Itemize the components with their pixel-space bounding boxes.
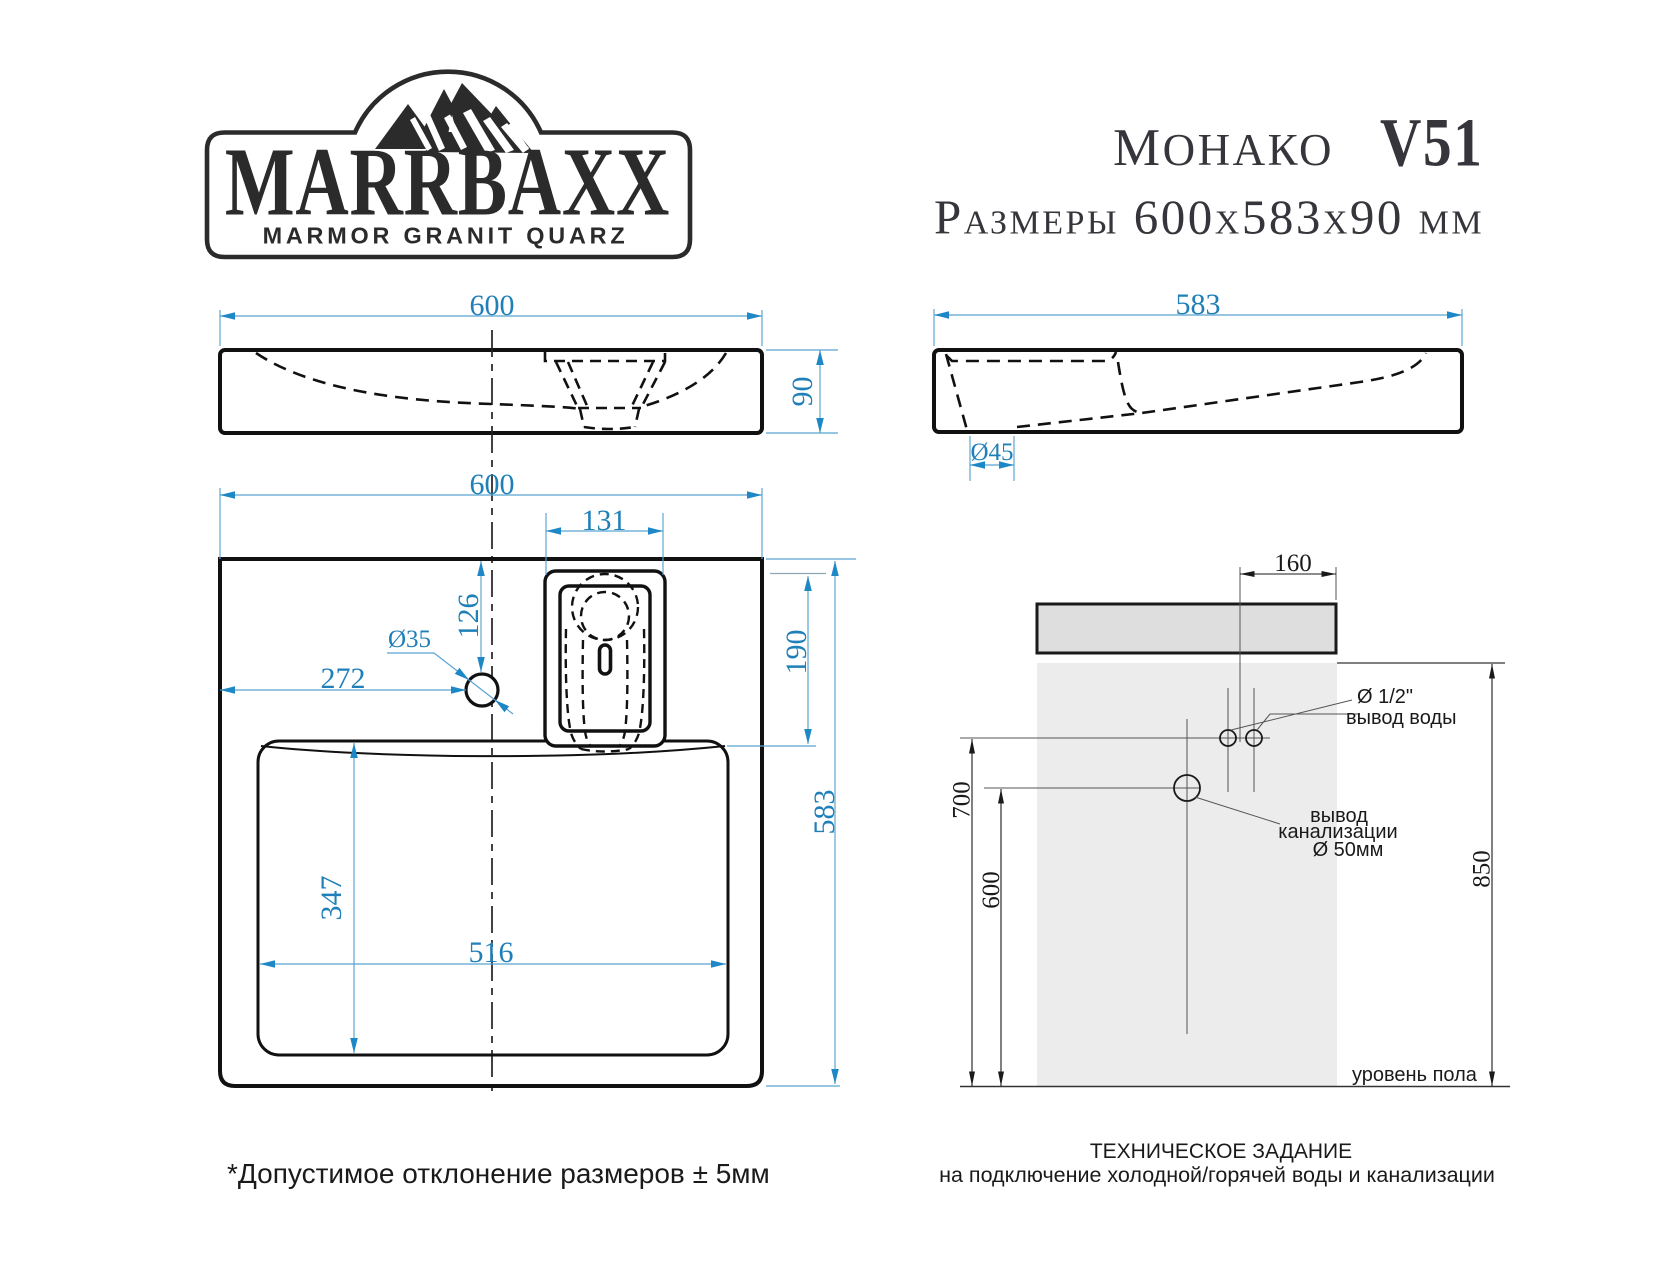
- svg-text:190: 190: [780, 630, 813, 675]
- svg-text:131: 131: [582, 504, 627, 537]
- svg-text:600: 600: [470, 468, 515, 501]
- svg-text:MARMOR GRANIT QUARZ: MARMOR GRANIT QUARZ: [263, 223, 629, 249]
- svg-text:Ø45: Ø45: [970, 439, 1013, 466]
- svg-text:Ø35: Ø35: [388, 626, 431, 653]
- svg-text:Ø 1/2": Ø 1/2": [1357, 686, 1413, 708]
- svg-text:вывод воды: вывод воды: [1346, 707, 1456, 729]
- svg-text:Ø 50мм: Ø 50мм: [1313, 839, 1384, 861]
- svg-text:516: 516: [469, 936, 514, 969]
- svg-text:600: 600: [978, 871, 1005, 909]
- svg-text:160: 160: [1274, 550, 1312, 577]
- svg-text:347: 347: [315, 876, 348, 921]
- svg-text:126: 126: [452, 594, 485, 639]
- svg-text:МОНАКО: МОНАКО: [1113, 119, 1334, 177]
- svg-text:90: 90: [786, 377, 819, 407]
- svg-text:583: 583: [808, 790, 841, 835]
- svg-text:272: 272: [321, 662, 366, 695]
- svg-text:700: 700: [949, 781, 976, 819]
- svg-text:Размеры 600х583х90 мм: Размеры 600х583х90 мм: [934, 190, 1484, 245]
- svg-text:на подключение холодной/горяче: на подключение холодной/горячей воды и к…: [939, 1163, 1495, 1187]
- svg-text:850: 850: [1469, 850, 1496, 888]
- svg-text:V51: V51: [1380, 105, 1484, 181]
- svg-text:600: 600: [470, 289, 515, 322]
- svg-text:MARRBAXX: MARRBAXX: [225, 128, 670, 236]
- svg-text:уровень пола: уровень пола: [1352, 1064, 1478, 1086]
- svg-text:*Допустимое отклонение размеро: *Допустимое отклонение размеров ± 5мм: [227, 1158, 770, 1189]
- svg-text:583: 583: [1176, 288, 1221, 321]
- svg-text:ТЕХНИЧЕСКОЕ ЗАДАНИЕ: ТЕХНИЧЕСКОЕ ЗАДАНИЕ: [1090, 1140, 1352, 1163]
